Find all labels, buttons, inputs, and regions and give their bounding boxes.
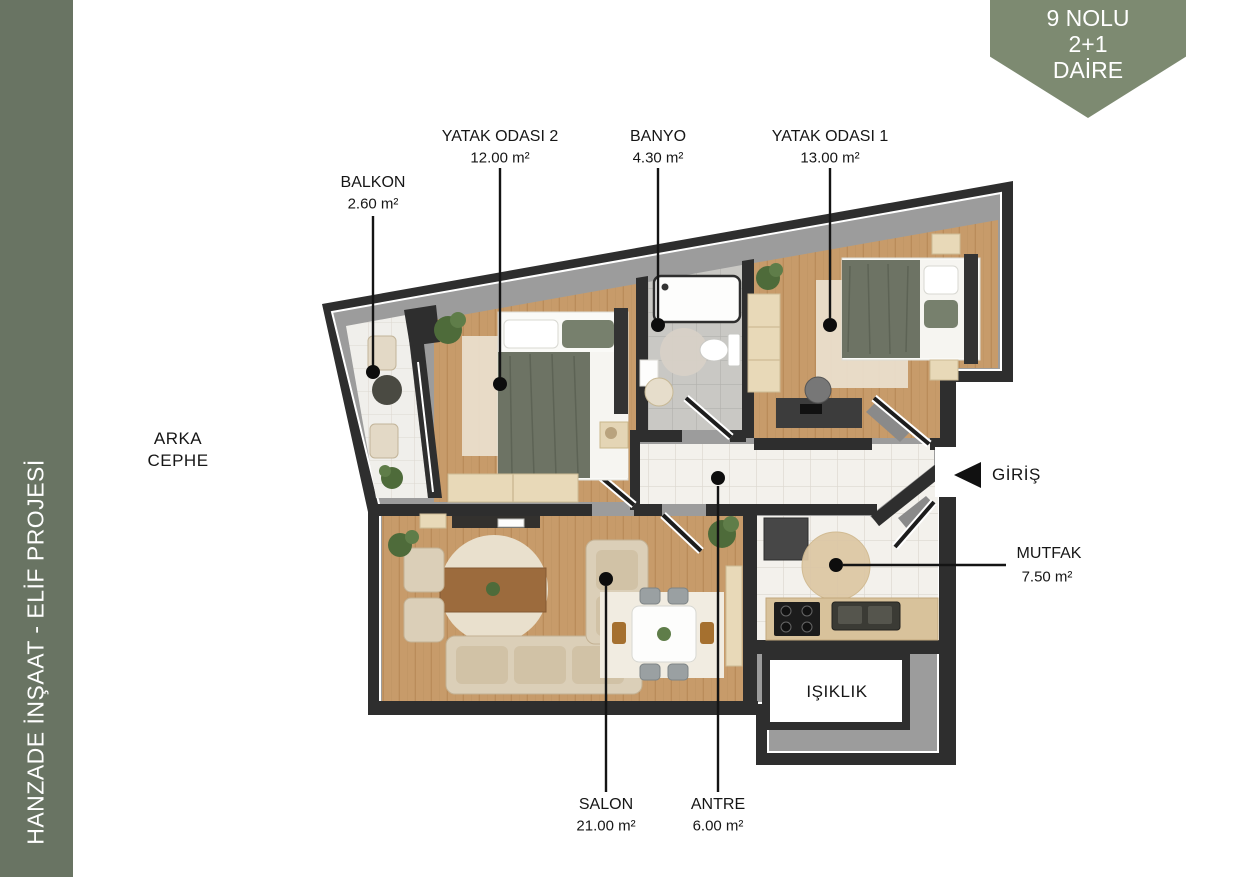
entrance-arrow-icon: [954, 462, 981, 488]
plant-icon: [405, 530, 419, 544]
shower-icon: [654, 276, 740, 322]
nightstand-icon: [930, 360, 958, 380]
entrance-marker: GİRİŞ: [954, 462, 1041, 488]
facade-label-line2: CEPHE: [147, 451, 208, 471]
shelf-icon: [420, 514, 446, 528]
plant-icon: [450, 312, 466, 328]
stove-icon: [774, 602, 820, 636]
area-banyo: 4.30 m²: [633, 150, 684, 167]
page: { "sidebar": { "title": "HANZADE İNŞAAT …: [0, 0, 1240, 877]
chair-icon: [640, 588, 660, 604]
side-table-icon: [372, 375, 402, 405]
armchair-icon: [404, 548, 444, 592]
armchair-icon: [404, 598, 444, 642]
label-banyo: BANYO: [630, 128, 686, 146]
facade-label-line1: ARKA: [154, 429, 202, 449]
chair-icon: [805, 377, 831, 403]
tv-console-icon: [452, 516, 540, 528]
label-balkon: BALKON: [341, 174, 406, 192]
nightstand-icon: [932, 234, 960, 254]
area-yatak-odasi-1: 13.00 m²: [800, 150, 859, 167]
area-yatak-odasi-2: 12.00 m²: [470, 150, 529, 167]
area-balkon: 2.60 m²: [348, 196, 399, 213]
sink-icon: [645, 378, 673, 406]
area-salon: 21.00 m²: [576, 818, 635, 835]
label-isiklik: IŞIKLIK: [806, 682, 867, 702]
toilet-icon: [728, 334, 740, 366]
label-salon: SALON: [579, 796, 633, 814]
chair-icon: [640, 664, 660, 680]
label-yatak-odasi-2: YATAK ODASI 2: [442, 128, 558, 146]
sideboard-icon: [726, 566, 742, 666]
headboard-icon: [964, 254, 978, 364]
label-mutfak: MUTFAK: [1017, 545, 1082, 563]
plant-icon: [379, 465, 391, 477]
fridge-icon: [764, 518, 808, 560]
plant-icon: [769, 263, 783, 277]
area-antre: 6.00 m²: [693, 818, 744, 835]
wardrobe-icon: [614, 308, 628, 414]
label-antre: ANTRE: [691, 796, 745, 814]
area-mutfak: 7.50 m²: [1022, 569, 1073, 586]
plant-icon: [486, 582, 500, 596]
label-yatak-odasi-1: YATAK ODASI 1: [772, 128, 888, 146]
plant-icon: [723, 516, 739, 532]
chair-icon: [668, 664, 688, 680]
armchair-icon: [370, 424, 398, 458]
chair-icon: [700, 622, 714, 644]
chair-icon: [668, 588, 688, 604]
wardrobe-icon: [748, 294, 780, 392]
chair-icon: [612, 622, 626, 644]
entrance-label: GİRİŞ: [992, 465, 1041, 485]
